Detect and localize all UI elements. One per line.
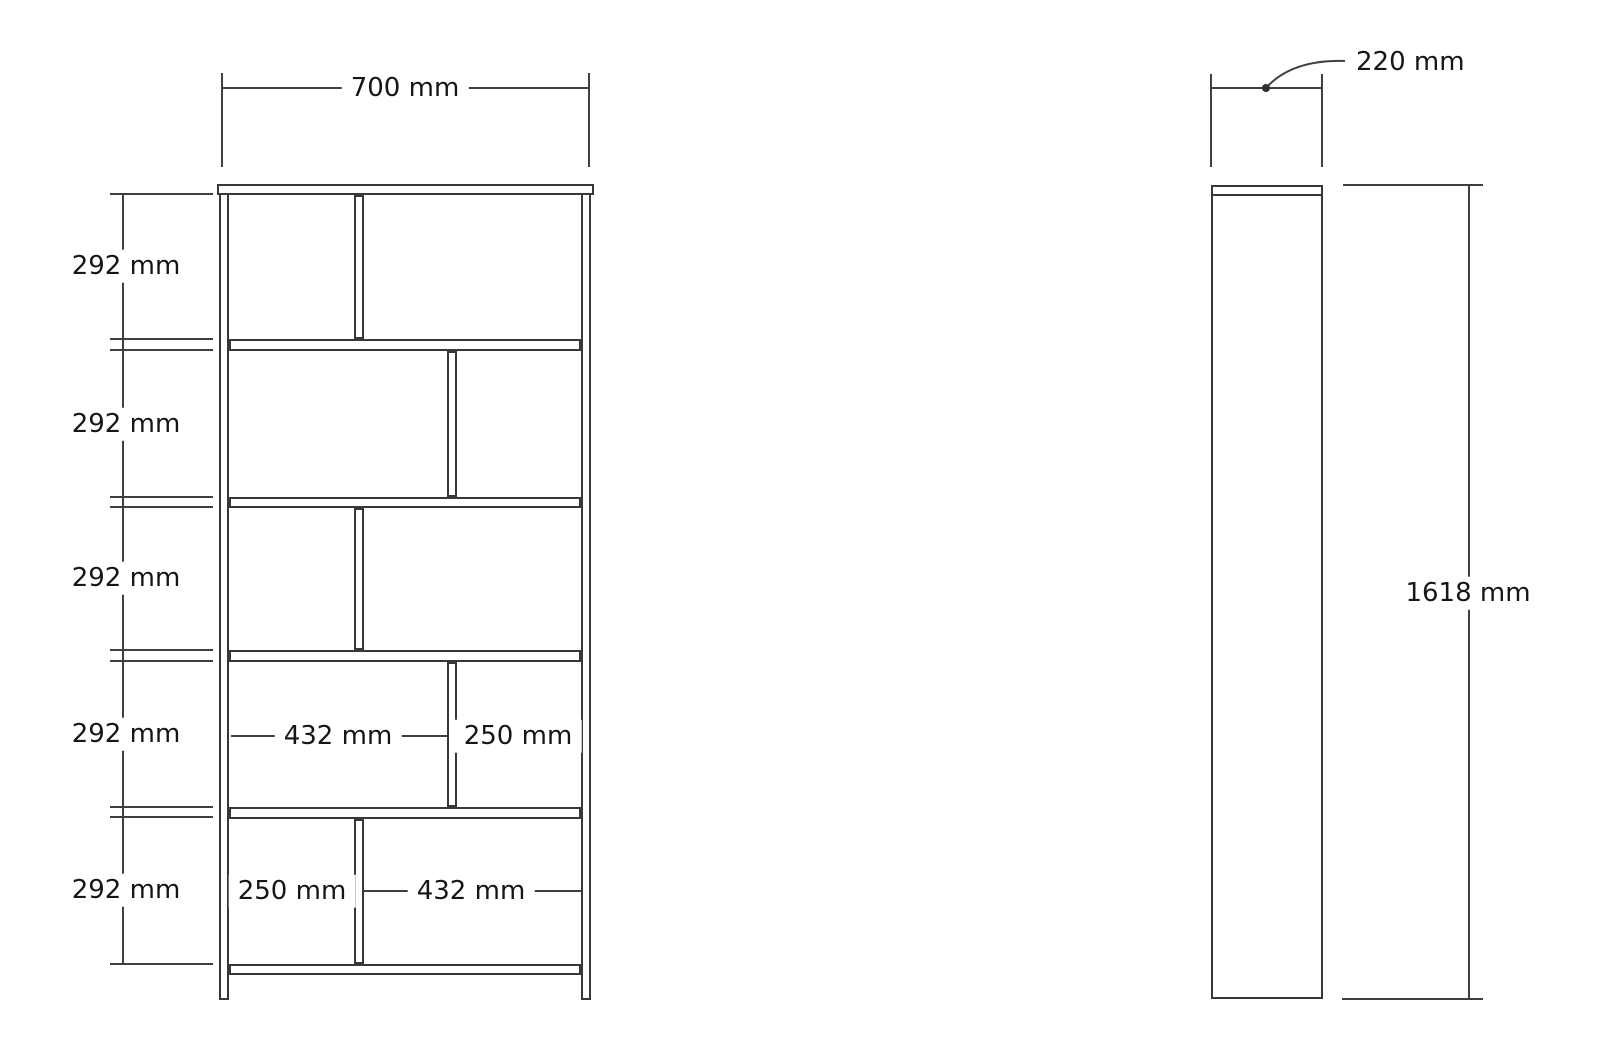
row5-right-compartment-label: 432 mm xyxy=(408,875,535,908)
leader-dot xyxy=(1262,84,1270,92)
shelf-1 xyxy=(229,339,581,351)
height-extension-line-bottom xyxy=(1342,998,1483,1000)
row-height-label-4: 292 mm xyxy=(63,718,190,751)
extension-line-shelf1-b xyxy=(110,349,213,351)
row4-left-compartment-label: 432 mm xyxy=(275,720,402,753)
width-dimension-label: 700 mm xyxy=(342,72,469,105)
extension-line-shelf3-a xyxy=(110,649,213,651)
side-panel xyxy=(1211,185,1323,999)
depth-dimension-label: 220 mm xyxy=(1352,46,1469,79)
extension-line-shelf4-b xyxy=(110,816,213,818)
side-panel-top-edge xyxy=(1213,194,1321,196)
row5-left-compartment-label: 250 mm xyxy=(229,875,356,908)
row-height-label-5: 292 mm xyxy=(63,874,190,907)
front-right-leg xyxy=(581,184,591,1000)
extension-line-shelf1-a xyxy=(110,338,213,340)
row-height-label-1: 292 mm xyxy=(63,250,190,283)
row4-right-compartment-label: 250 mm xyxy=(455,720,582,753)
extension-line-shelf2-b xyxy=(110,506,213,508)
row-height-label-2: 292 mm xyxy=(63,408,190,441)
row-height-label-3: 292 mm xyxy=(63,562,190,595)
front-top-panel xyxy=(217,184,594,195)
shelf-4 xyxy=(229,807,581,819)
divider-row1 xyxy=(354,195,364,339)
extension-line-top xyxy=(110,193,213,195)
front-left-leg xyxy=(219,184,229,1000)
bottom-shelf xyxy=(229,964,581,975)
height-dimension-label: 1618 mm xyxy=(1396,577,1539,610)
divider-row2 xyxy=(447,351,457,497)
extension-line-shelf2-a xyxy=(110,496,213,498)
depth-leader-line xyxy=(1240,46,1355,96)
divider-row5 xyxy=(354,819,364,964)
height-extension-line-top xyxy=(1343,184,1483,186)
divider-row3 xyxy=(354,508,364,650)
technical-drawing-canvas: 700 mm 292 mm 292 mm 292 mm 292 mm 292 m… xyxy=(0,0,1600,1056)
extension-line-bottom xyxy=(110,963,213,965)
shelf-2 xyxy=(229,497,581,508)
extension-line-shelf4-a xyxy=(110,806,213,808)
extension-line-shelf3-b xyxy=(110,660,213,662)
shelf-3 xyxy=(229,650,581,662)
